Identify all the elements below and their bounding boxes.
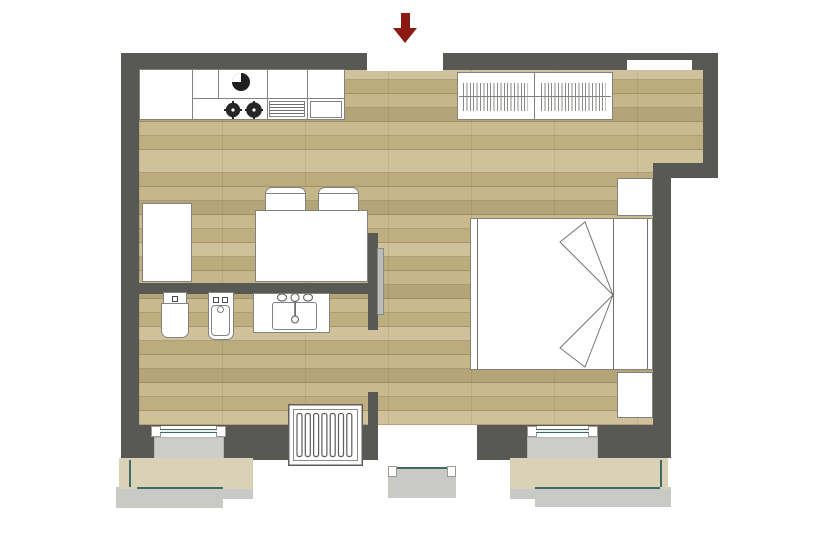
bidet-tap-b xyxy=(222,297,228,303)
radiator-icon xyxy=(288,404,363,466)
entrance-arrow-icon xyxy=(401,13,410,29)
balcony-door xyxy=(378,425,477,468)
walkway-left xyxy=(116,487,223,508)
bathroom-door-panel xyxy=(377,248,384,315)
entrance-arrow-head xyxy=(393,28,417,43)
walkway-right-edge xyxy=(535,487,660,489)
terrace-right xyxy=(510,458,668,489)
entrance-opening xyxy=(367,52,443,71)
balcony-door-step xyxy=(388,468,456,498)
wall-left xyxy=(121,70,139,460)
wardrobe-hangers-left xyxy=(463,83,528,111)
nightstand-top xyxy=(617,178,653,216)
dining-table xyxy=(255,210,368,282)
kitchen-appliances-icons xyxy=(139,69,345,120)
wardrobe-rail xyxy=(459,96,611,97)
window-right-jamb-b xyxy=(588,426,598,437)
balcony-door-cap-b xyxy=(447,466,456,477)
toilet-bowl xyxy=(161,303,189,338)
duvet-fold-lower xyxy=(560,295,613,367)
wall-right-lower xyxy=(653,178,671,458)
bed-details xyxy=(470,218,653,370)
top-wall-window-slot xyxy=(627,60,692,70)
wall-right-upper xyxy=(703,70,718,163)
terrace-left-glazing-line xyxy=(129,460,131,487)
nightstand-bottom xyxy=(617,372,653,418)
walkway-left-edge xyxy=(137,487,223,489)
chair-left-backrest xyxy=(266,193,305,194)
window-left-jamb-b xyxy=(216,426,226,437)
terrace-right-glazing-line xyxy=(660,460,662,487)
bidet-drain xyxy=(217,306,224,313)
terrace-left xyxy=(119,458,253,489)
toilet-button xyxy=(172,296,178,302)
chair-right-backrest xyxy=(319,193,358,194)
walkway-right xyxy=(535,487,671,507)
window-left-sill xyxy=(154,437,224,459)
window-right-sill xyxy=(527,437,598,459)
window-left-glazing xyxy=(160,429,217,433)
tall-cabinet xyxy=(142,203,192,282)
wardrobe-hangers-right xyxy=(541,83,606,111)
wall-step xyxy=(653,163,718,178)
floor-plan xyxy=(0,0,820,560)
faucet-icon xyxy=(274,292,316,324)
duvet-fold-upper xyxy=(560,222,613,295)
bidet-tap-a xyxy=(213,297,219,303)
wall-bathroom-right-lower xyxy=(368,392,378,427)
window-right-glazing xyxy=(536,429,589,433)
balcony-door-threshold xyxy=(397,467,447,469)
balcony-door-cap-a xyxy=(388,466,397,477)
